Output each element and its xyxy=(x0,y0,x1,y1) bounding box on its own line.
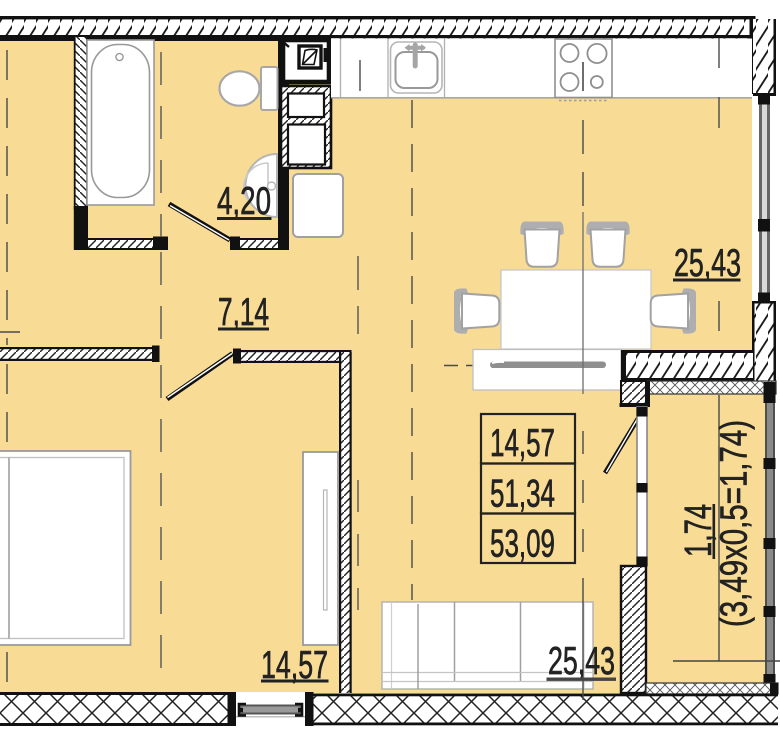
svg-text:14,57: 14,57 xyxy=(490,422,555,465)
svg-text:4,20: 4,20 xyxy=(217,180,271,223)
svg-text:53,09: 53,09 xyxy=(490,523,555,566)
svg-text:25,43: 25,43 xyxy=(548,640,615,683)
svg-text:(3,49x0,5=1,74): (3,49x0,5=1,74) xyxy=(714,420,756,627)
svg-text:51,34: 51,34 xyxy=(490,473,555,516)
